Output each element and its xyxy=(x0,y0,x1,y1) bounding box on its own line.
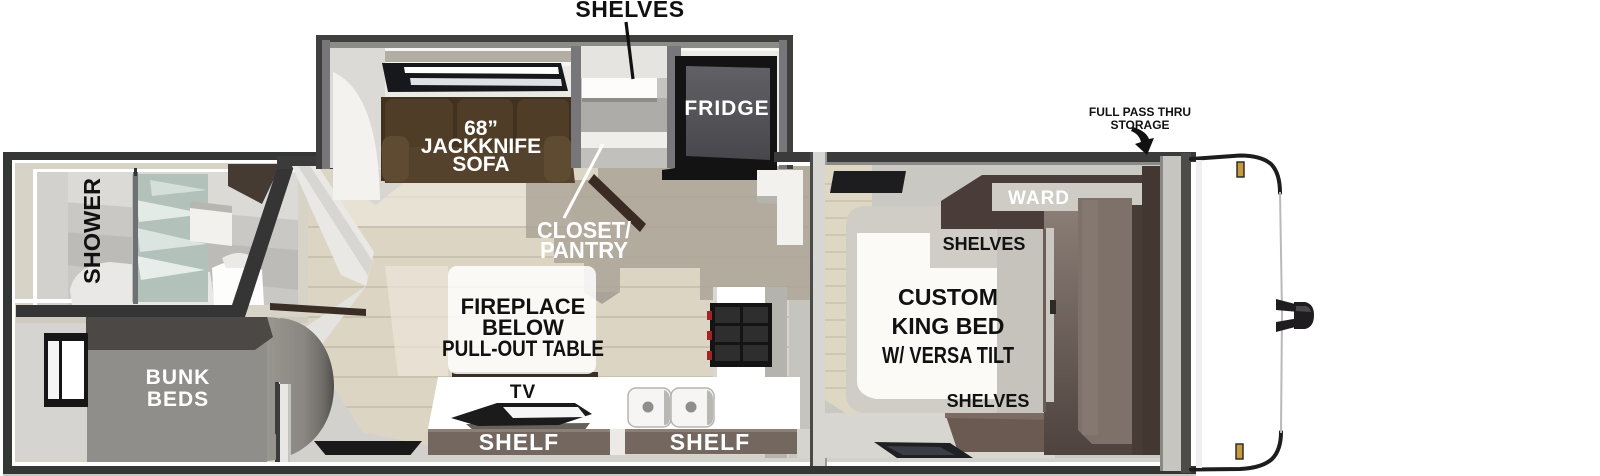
svg-text:SHELF: SHELF xyxy=(479,429,559,455)
svg-text:W/ VERSA TILT: W/ VERSA TILT xyxy=(882,342,1014,368)
svg-text:BUNK: BUNK xyxy=(146,366,211,389)
svg-text:BEDS: BEDS xyxy=(147,388,209,411)
svg-text:SOFA: SOFA xyxy=(452,153,509,176)
svg-text:WARD: WARD xyxy=(1008,188,1070,209)
svg-text:FULL PASS THRU: FULL PASS THRU xyxy=(1089,105,1191,119)
svg-text:TV: TV xyxy=(510,382,536,403)
svg-text:CUSTOM: CUSTOM xyxy=(898,284,998,310)
svg-text:SHELF: SHELF xyxy=(670,429,750,455)
svg-text:PULL-OUT TABLE: PULL-OUT TABLE xyxy=(442,336,604,361)
svg-text:KING BED: KING BED xyxy=(892,313,1005,339)
svg-text:FRIDGE: FRIDGE xyxy=(684,97,769,120)
svg-text:SHELVES: SHELVES xyxy=(575,0,684,22)
svg-text:SHELVES: SHELVES xyxy=(943,234,1026,254)
svg-text:SHELVES: SHELVES xyxy=(947,391,1030,411)
svg-text:PANTRY: PANTRY xyxy=(540,237,628,263)
svg-text:SHOWER: SHOWER xyxy=(79,178,105,284)
